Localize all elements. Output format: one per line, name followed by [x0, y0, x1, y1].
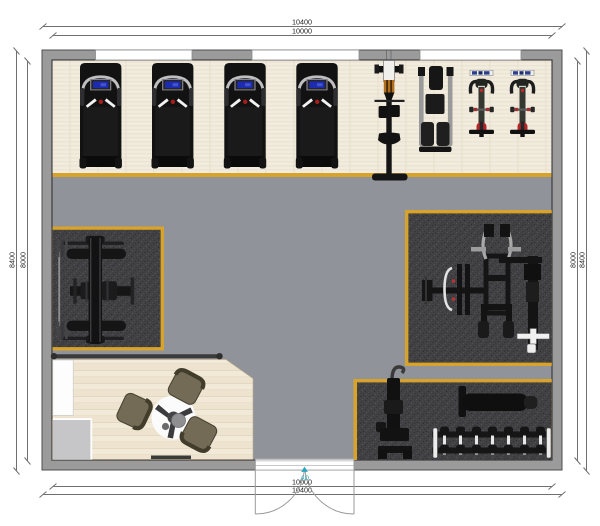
- svg-text:8000: 8000: [19, 252, 28, 268]
- svg-text:10000: 10000: [292, 27, 312, 36]
- svg-text:AD: AD: [300, 475, 309, 482]
- svg-text:8000: 8000: [569, 252, 578, 268]
- svg-text:8400: 8400: [578, 252, 587, 268]
- svg-text:10400: 10400: [292, 486, 312, 495]
- svg-text:8400: 8400: [8, 252, 17, 268]
- svg-text:10400: 10400: [292, 18, 312, 27]
